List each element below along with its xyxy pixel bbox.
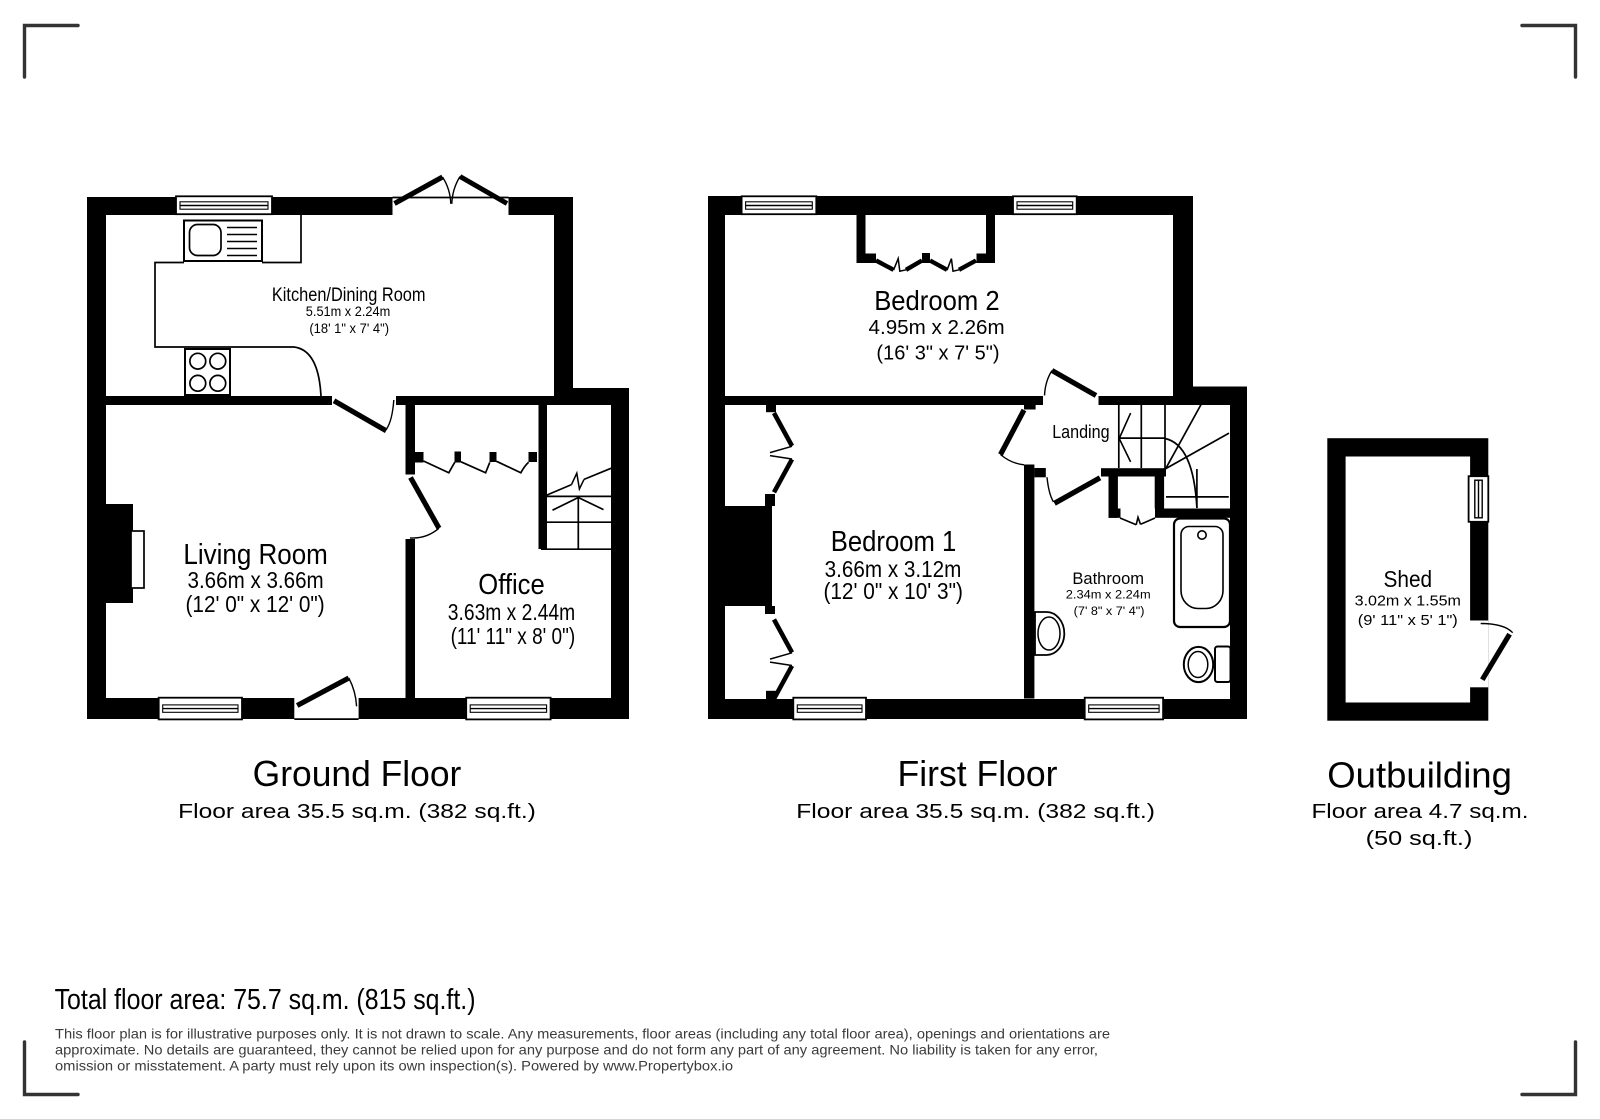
svg-text:This floor plan is for illustr: This floor plan is for illustrative purp… (55, 1026, 1110, 1042)
svg-text:omission or misstatement. A pa: omission or misstatement. A party must r… (55, 1058, 733, 1074)
svg-text:Floor area 35.5 sq.m. (382 sq.: Floor area 35.5 sq.m. (382 sq.ft.) (178, 800, 536, 823)
svg-text:Bedroom 2: Bedroom 2 (874, 285, 999, 316)
svg-text:3.63m x 2.44m: 3.63m x 2.44m (448, 599, 575, 625)
svg-text:5.51m x 2.24m: 5.51m x 2.24m (306, 304, 390, 319)
svg-text:Floor area 4.7 sq.m.: Floor area 4.7 sq.m. (1312, 800, 1529, 823)
svg-text:4.95m x 2.26m: 4.95m x 2.26m (869, 317, 1005, 339)
svg-text:Bathroom: Bathroom (1072, 569, 1144, 588)
svg-text:First Floor: First Floor (898, 753, 1058, 794)
svg-text:Kitchen/Dining Room: Kitchen/Dining Room (272, 284, 426, 306)
svg-text:(7' 8" x 7' 4"): (7' 8" x 7' 4") (1074, 606, 1145, 618)
svg-text:approximate. No details are gu: approximate. No details are guaranteed, … (55, 1042, 1098, 1058)
svg-text:Outbuilding: Outbuilding (1327, 755, 1512, 796)
svg-text:Bedroom 1: Bedroom 1 (831, 526, 957, 558)
svg-text:(12' 0" x 12' 0"): (12' 0" x 12' 0") (186, 591, 325, 617)
svg-text:(18' 1" x 7' 4"): (18' 1" x 7' 4") (309, 321, 389, 336)
svg-text:(16' 3" x 7' 5"): (16' 3" x 7' 5") (876, 343, 999, 365)
svg-text:Floor area 35.5 sq.m. (382 sq.: Floor area 35.5 sq.m. (382 sq.ft.) (796, 800, 1155, 823)
svg-text:3.02m x 1.55m: 3.02m x 1.55m (1355, 592, 1461, 609)
svg-text:3.66m x 3.66m: 3.66m x 3.66m (188, 567, 324, 593)
svg-text:(9' 11" x 5' 1"): (9' 11" x 5' 1") (1358, 612, 1458, 629)
svg-text:(12' 0" x 10' 3"): (12' 0" x 10' 3") (823, 578, 963, 604)
svg-text:Shed: Shed (1384, 566, 1433, 592)
svg-text:(11' 11" x 8' 0"): (11' 11" x 8' 0") (451, 623, 576, 649)
svg-text:Landing: Landing (1052, 422, 1109, 442)
svg-text:(50 sq.ft.): (50 sq.ft.) (1366, 827, 1473, 850)
svg-text:Ground Floor: Ground Floor (253, 753, 462, 794)
svg-text:Total floor area: 75.7 sq.m. (: Total floor area: 75.7 sq.m. (815 sq.ft.… (55, 984, 476, 1016)
svg-text:2.34m x 2.24m: 2.34m x 2.24m (1066, 590, 1151, 602)
svg-text:Office: Office (478, 569, 544, 601)
